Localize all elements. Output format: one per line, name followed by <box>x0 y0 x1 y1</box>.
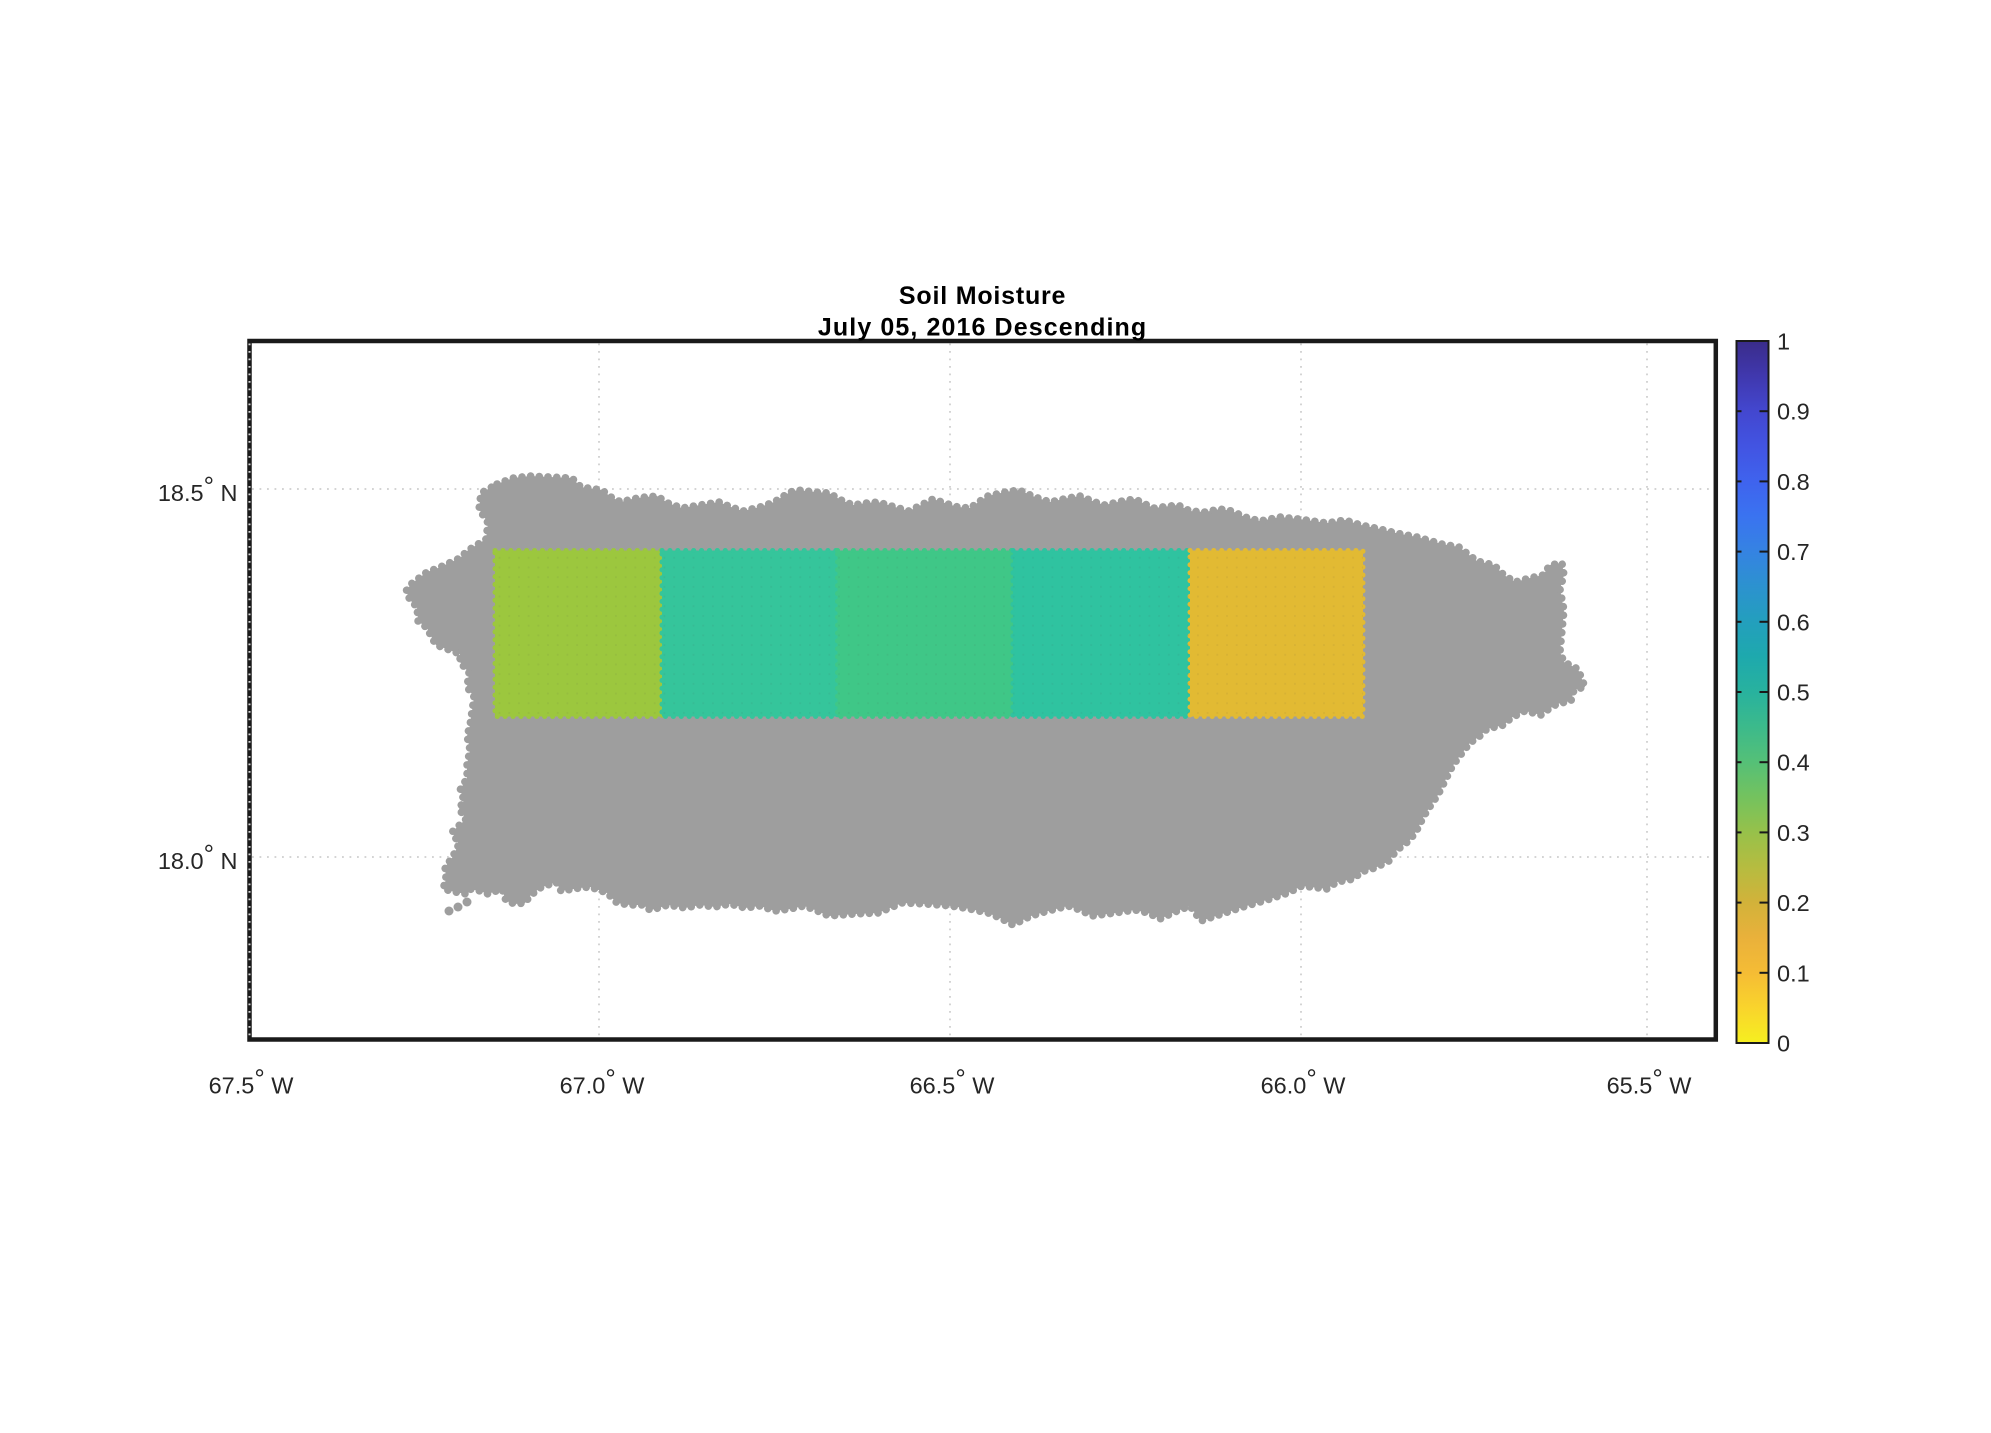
svg-text:66.0° W: 66.0° W <box>1261 1063 1347 1098</box>
svg-text:0.7: 0.7 <box>1777 539 1810 565</box>
svg-text:0.1: 0.1 <box>1777 960 1810 986</box>
svg-text:0.4: 0.4 <box>1777 750 1810 776</box>
svg-text:0.2: 0.2 <box>1777 890 1810 916</box>
svg-text:67.0° W: 67.0° W <box>560 1063 646 1098</box>
svg-text:66.5° W: 66.5° W <box>910 1063 996 1098</box>
svg-text:65.5° W: 65.5° W <box>1607 1063 1693 1098</box>
svg-text:0.8: 0.8 <box>1777 469 1810 495</box>
svg-text:0.9: 0.9 <box>1777 399 1810 425</box>
svg-text:0: 0 <box>1777 1031 1790 1057</box>
svg-text:18.5° N: 18.5° N <box>158 471 238 506</box>
svg-text:July 05, 2016 Descending: July 05, 2016 Descending <box>818 314 1147 342</box>
svg-text:18.0° N: 18.0° N <box>158 839 238 874</box>
svg-text:67.5° W: 67.5° W <box>209 1063 295 1098</box>
svg-text:Soil Moisture: Soil Moisture <box>899 282 1066 310</box>
svg-text:0.3: 0.3 <box>1777 820 1810 846</box>
svg-text:1: 1 <box>1777 329 1790 355</box>
svg-text:0.6: 0.6 <box>1777 609 1810 635</box>
svg-text:0.5: 0.5 <box>1777 680 1810 706</box>
